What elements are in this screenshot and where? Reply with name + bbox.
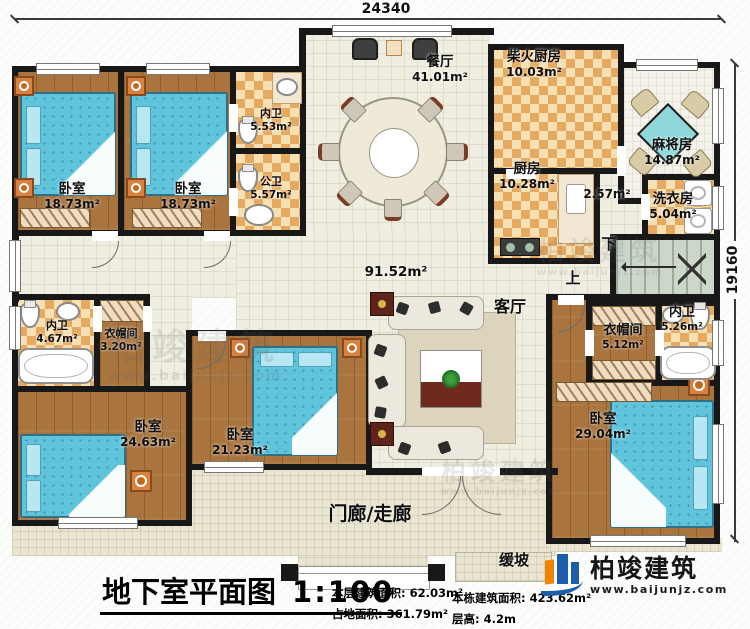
room-label-kitchen: 厨房10.28m²	[496, 162, 558, 191]
logo-name: 柏竣建筑	[590, 556, 728, 582]
door-gap	[92, 231, 118, 241]
room-label-bedroom-bl: 卧室24.63m²	[106, 420, 190, 449]
dimension-top-value: 24340	[350, 1, 422, 17]
side-table-icon	[370, 422, 394, 446]
room-label-bedroom-top-1: 卧室18.73m²	[34, 182, 110, 211]
window	[58, 517, 138, 529]
chair-icon	[384, 199, 402, 221]
room-label-dining: 餐厅41.01m²	[400, 55, 480, 84]
logo-url: www.baijunjz.com	[590, 583, 728, 596]
room-label-living: 客厅	[478, 298, 542, 316]
window	[9, 306, 21, 350]
wardrobe-icon	[100, 300, 144, 322]
window	[712, 424, 724, 504]
nightstand-icon	[14, 178, 34, 198]
logo-building-icon	[541, 552, 583, 600]
logo-text-block: 柏竣建筑 www.baijunjz.com	[590, 556, 728, 595]
stair-arrowhead-icon	[616, 262, 626, 272]
window	[146, 63, 210, 75]
nightstand-icon	[230, 338, 250, 358]
entry-step-line	[298, 573, 428, 574]
plan-title-text: 地下室平面图	[102, 575, 276, 609]
wall	[299, 28, 306, 72]
stair-down-label: 下	[594, 236, 624, 253]
washbasin-icon	[276, 78, 298, 96]
sofa-icon	[388, 296, 484, 330]
entry-step-top	[298, 556, 428, 566]
room-label-bedroom-br: 卧室29.04m²	[558, 412, 648, 441]
porch-label: 门廊/走廊	[300, 504, 440, 526]
chair-icon	[446, 143, 468, 161]
window	[332, 25, 452, 37]
wardrobe-icon	[556, 382, 652, 402]
door-gap	[617, 146, 626, 176]
company-logo: 柏竣建筑 www.baijunjz.com	[541, 552, 728, 600]
plan-title: 地下室平面图1:100	[100, 577, 402, 615]
dimension-line-right	[734, 64, 736, 542]
side-table-icon	[370, 292, 394, 316]
stair-break-icon	[678, 248, 706, 290]
room-label-bath-inner-right: 内卫5.26m²	[652, 306, 712, 333]
coffee-table-icon	[420, 350, 482, 408]
window	[712, 320, 724, 366]
sofa-icon	[388, 426, 484, 460]
plan-scale: 1:100	[292, 575, 394, 609]
nightstand-icon	[126, 76, 146, 96]
room-label-closet-left: 衣帽间3.20m²	[92, 328, 150, 353]
dimension-right-value: 19160	[725, 241, 741, 299]
door-gap	[229, 104, 238, 132]
porch-column-right	[428, 564, 445, 581]
washbasin-icon	[244, 204, 274, 226]
room-label-closet-right: 衣帽间5.12m²	[588, 324, 658, 351]
living-area-label: 91.52m²	[358, 265, 434, 281]
sofa-icon	[368, 334, 406, 428]
window	[9, 240, 21, 292]
door-gap	[558, 295, 584, 305]
stair-arrow	[624, 266, 676, 268]
window	[636, 59, 698, 71]
bathtub-icon	[660, 346, 716, 380]
nightstand-icon	[342, 338, 362, 358]
window	[36, 63, 100, 75]
room-label-bath-inner-left: 内卫4.67m²	[26, 320, 88, 345]
door-gap	[229, 188, 238, 216]
window	[712, 88, 724, 144]
window	[712, 186, 724, 230]
room-label-laundry: 洗衣房5.04m²	[640, 192, 706, 221]
window	[590, 535, 686, 547]
stair-up-label: 上	[558, 270, 588, 287]
window	[204, 461, 264, 473]
door-gap	[204, 231, 230, 241]
wardrobe-icon	[592, 360, 656, 380]
stove-icon	[500, 238, 540, 256]
room-label-bath-public: 公卫5.57m²	[242, 176, 300, 201]
chair-icon	[318, 143, 340, 161]
room-label-mahjong: 麻将房14.87m²	[632, 138, 712, 167]
armchair-icon	[352, 38, 378, 60]
room-label-bath-inner-top: 内卫5.53m²	[242, 108, 300, 133]
bathtub-icon	[18, 348, 94, 384]
nightstand-icon	[126, 178, 146, 198]
room-label-firewood-kitchen: 柴火厨房10.03m²	[494, 50, 574, 79]
door-gap	[198, 331, 226, 341]
room-label-bedroom-bc: 卧室21.23m²	[198, 428, 282, 457]
floorplan-canvas: 餐厅41.01m² 柴火厨房10.03m² 厨房10.28m² 麻将房14.87…	[0, 0, 750, 629]
room-label-bedroom-top-2: 卧室18.73m²	[150, 182, 226, 211]
ramp-label: 缓坡	[486, 552, 542, 569]
door-gap	[422, 467, 500, 476]
nightstand-icon	[130, 470, 152, 492]
stat-row: 层高: 4.2m	[452, 609, 591, 629]
nightstand-icon	[14, 76, 34, 96]
dimension-line-top	[14, 18, 722, 20]
side-table-icon	[386, 40, 402, 56]
room-label-corridor: 2.57m²	[580, 188, 634, 202]
